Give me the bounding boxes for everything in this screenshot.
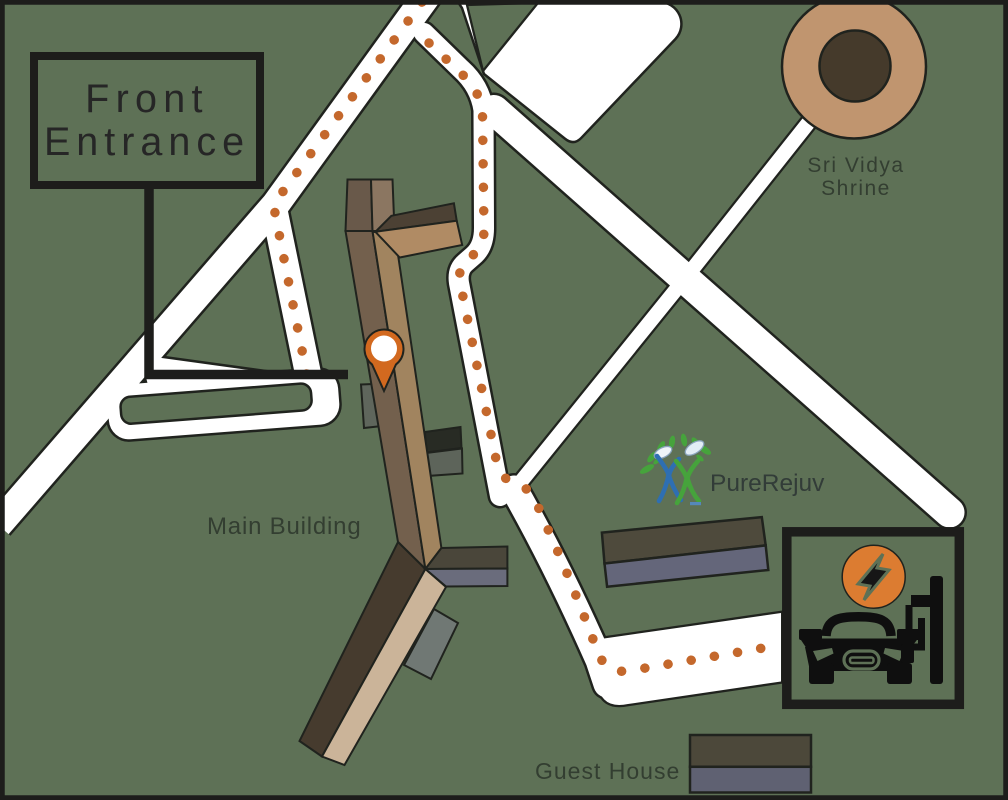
svg-text:Shrine: Shrine: [821, 177, 891, 200]
svg-text:Front: Front: [85, 77, 209, 121]
svg-text:Main Building: Main Building: [207, 513, 361, 540]
svg-text:Entrance: Entrance: [44, 120, 250, 164]
svg-text:Sri Vidya: Sri Vidya: [807, 154, 904, 177]
svg-text:Guest House: Guest House: [535, 758, 680, 784]
svg-text:PureRejuv: PureRejuv: [710, 470, 825, 497]
